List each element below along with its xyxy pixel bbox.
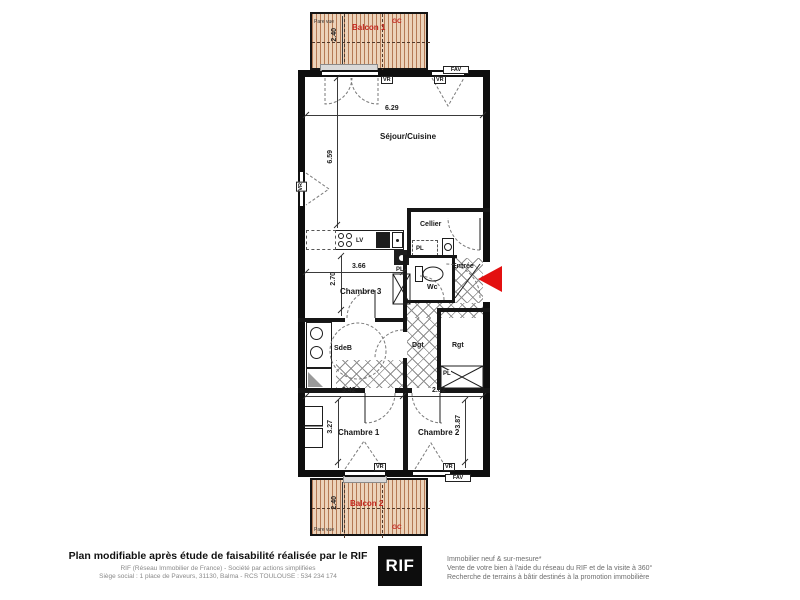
vr-tag: VR xyxy=(434,76,446,84)
washbasin-icon xyxy=(310,327,323,340)
dim-line-ch3-h xyxy=(341,256,342,316)
door-swing xyxy=(375,330,403,358)
wall-rgt-top xyxy=(437,308,490,312)
sejour-label: Séjour/Cuisine xyxy=(380,133,436,141)
footer-title: Plan modifiable après étude de faisabili… xyxy=(58,550,378,562)
chambre2-label: Chambre 2 xyxy=(418,429,459,437)
vr-tag: VR xyxy=(374,463,386,471)
closet-icon xyxy=(303,406,323,426)
entree-label: Entrée xyxy=(452,263,474,271)
dim-line-bottom-w xyxy=(306,396,483,397)
chambre2-width-dim: 2.82 xyxy=(432,387,446,394)
sdb-floor-hatch xyxy=(336,360,403,388)
dim-line-ch3-w xyxy=(306,272,403,273)
sdb-width-dim: 3.42 xyxy=(342,387,356,394)
vr-tag: VR xyxy=(443,463,455,471)
dim-line xyxy=(342,16,343,66)
dishwasher-label: LV xyxy=(356,237,363,245)
sejour-width-dim: 6.29 xyxy=(385,105,399,112)
stove-icon xyxy=(376,232,390,248)
footer-service-line: Immobilier neuf & sur-mesure* xyxy=(447,555,652,564)
appliance-drum xyxy=(444,243,452,251)
rif-logo: RIF xyxy=(378,546,422,586)
dim-line-ch2-h xyxy=(465,400,466,468)
wall-ch2-top-b xyxy=(440,388,490,393)
wall-cellier-left xyxy=(407,208,411,258)
balcon1-label: Balcon 1 xyxy=(352,24,385,32)
closet-icon xyxy=(303,428,323,448)
dim-line-sejour-h xyxy=(337,78,338,228)
wall-sdb-dgt-a xyxy=(403,322,407,332)
chambre1-height-dim: 3.27 xyxy=(327,420,334,434)
chambre1-label: Chambre 1 xyxy=(338,429,379,437)
wall-left xyxy=(298,70,305,477)
shower-tray-triangle xyxy=(308,372,323,387)
footer-service-line: Recherche de terrains à bâtir destinés à… xyxy=(447,573,652,582)
dim-line xyxy=(342,482,343,532)
chambre3-width-dim: 3.66 xyxy=(352,263,366,270)
sink-icon xyxy=(346,241,352,247)
vr-tag: VR xyxy=(296,182,307,192)
wall-rgt-left xyxy=(437,308,441,390)
toilet-bowl-icon xyxy=(423,267,443,281)
fav-tag: FAV xyxy=(443,66,469,74)
sink-icon xyxy=(338,241,344,247)
wall-ch3-sdb-a xyxy=(298,318,345,322)
rgt-pl-label: PL xyxy=(443,370,451,378)
footer-company-line: RIF (Réseau Immobilier de France) - Soci… xyxy=(58,565,378,572)
dim-line-sejour-w xyxy=(306,115,483,116)
toilet-tank-icon xyxy=(415,266,423,282)
wall-ch3-right xyxy=(403,255,407,322)
vr-tag: VR xyxy=(381,76,393,84)
gc-label-bottom: GC xyxy=(392,524,402,532)
wall-wc-bottom xyxy=(407,300,455,303)
balcon2-label: Balcon 2 xyxy=(350,500,383,508)
cellier-label: Cellier xyxy=(420,221,441,229)
fav-tag: FAV xyxy=(445,474,471,482)
wall-cellier-bottom xyxy=(407,255,457,258)
dgt-floor-hatch xyxy=(407,318,437,388)
chambre3-label: Chambre 3 xyxy=(340,288,381,296)
kitchen-unit-dot xyxy=(396,239,399,242)
balcony-divider xyxy=(382,480,383,538)
kitchen-placard xyxy=(306,230,336,250)
sink-icon xyxy=(338,233,344,239)
balcony-divider xyxy=(312,42,430,43)
chambre2-height-dim: 3.87 xyxy=(455,415,462,429)
sink-icon xyxy=(346,233,352,239)
window-tilt xyxy=(306,173,329,205)
balcony-divider xyxy=(312,508,430,509)
door-swing xyxy=(351,78,378,104)
wc-label: Wc xyxy=(427,284,438,292)
balcony-divider xyxy=(344,480,345,538)
footer-service-line: Vente de votre bien à l'aide du réseau d… xyxy=(447,564,652,573)
sdb-label: SdeB xyxy=(334,345,352,353)
footer-services: Immobilier neuf & sur-mesure* Vente de v… xyxy=(447,555,652,582)
cellier-pl-label: PL xyxy=(416,245,424,253)
pare-vue-label-bottom: Pare vue xyxy=(314,526,334,534)
dgt-label: Dgt xyxy=(412,342,424,350)
window-sill xyxy=(343,476,387,483)
footer-address-line: Siège social : 1 place de Paveurs, 31130… xyxy=(58,573,378,580)
door-swing xyxy=(412,393,442,423)
wall-ch1-ch2 xyxy=(403,393,408,470)
balcon1-depth-dim: 2.40 xyxy=(331,28,338,42)
sejour-height-dim: 6.59 xyxy=(327,150,334,164)
pare-vue-label-top: Pare vue xyxy=(314,18,334,26)
chambre3-height-dim: 2.70 xyxy=(330,272,337,286)
balcon2-depth-dim: 2.40 xyxy=(331,496,338,510)
wall-cellier-top xyxy=(407,208,490,212)
door-swing xyxy=(365,393,395,423)
entrance-arrow-icon xyxy=(478,266,502,292)
gc-label-top: GC xyxy=(392,18,402,26)
bay-window-sejour xyxy=(322,70,378,77)
washbasin-icon xyxy=(310,346,323,359)
floor-plan: Pare vue Balcon 1 GC 2.40 Balcon 2 2.40 … xyxy=(0,0,800,600)
wall-sdb-dgt-b xyxy=(403,358,407,390)
door-swing xyxy=(325,78,352,104)
window-chambre1 xyxy=(345,470,385,477)
rgt-label: Rgt xyxy=(452,342,464,350)
